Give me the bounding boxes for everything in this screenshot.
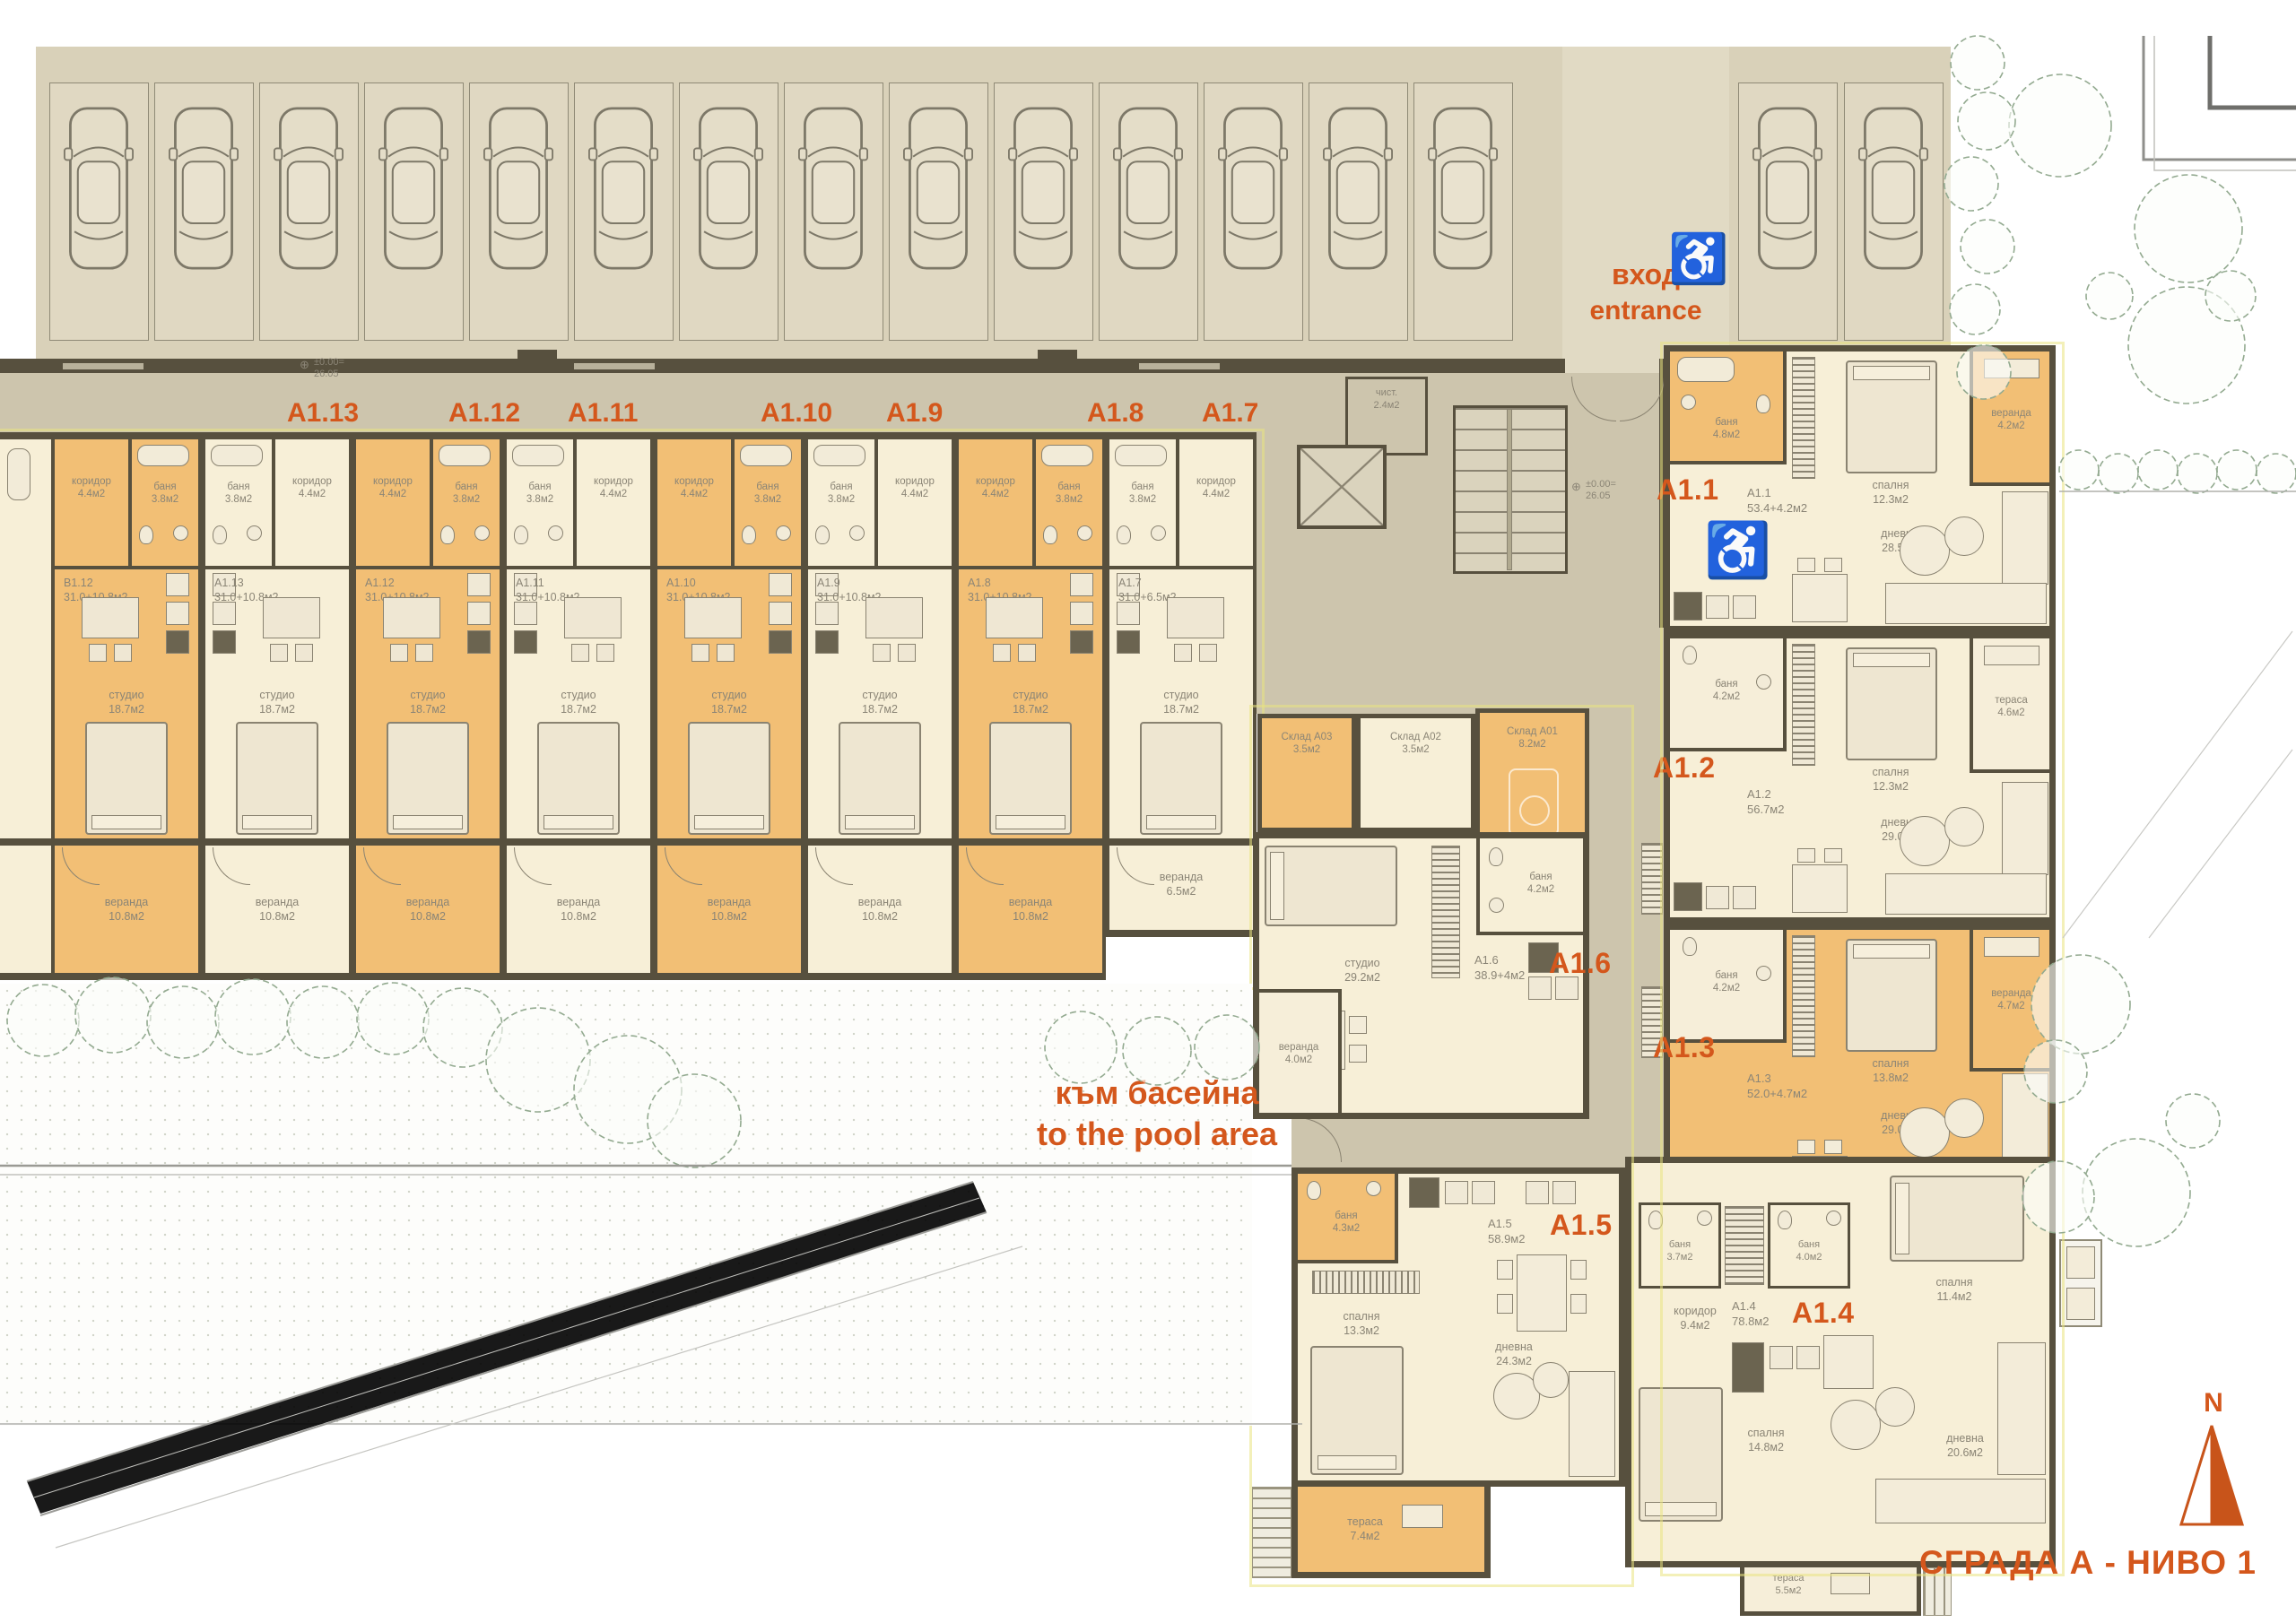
studio-veranda-label: веранда 10.8м2 xyxy=(507,896,650,924)
studio-chair xyxy=(89,644,107,662)
parking-stall xyxy=(259,82,359,341)
parking-stall xyxy=(1844,82,1944,341)
studio-hall-label: коридор 4.4м2 xyxy=(1181,475,1251,501)
studio-bath: баня 3.8м2 xyxy=(205,439,275,569)
studio-bath-label: баня 3.8м2 xyxy=(1113,481,1172,507)
studio-bath-label: баня 3.8м2 xyxy=(812,481,871,507)
page-title: СГРАДА А - НИВО 1 xyxy=(1919,1544,2278,1582)
studio-veranda-wall xyxy=(654,838,804,846)
studio-unit-a1-10: баня 3.8м2 коридор 4.4м2 A1.10 31.0+10.8… xyxy=(654,432,804,980)
studio-table xyxy=(383,597,440,638)
studio-veranda-label: веранда 10.8м2 xyxy=(959,896,1102,924)
studio-veranda: веранда 10.8м2 xyxy=(356,846,500,973)
studio-unit-a1-9: баня 3.8м2 коридор 4.4м2 A1.9 31.0+10.8м… xyxy=(804,432,955,980)
parking-stall xyxy=(784,82,883,341)
studio-table xyxy=(986,597,1043,638)
studio-bed xyxy=(537,722,620,835)
studio-veranda: веранда 10.8м2 xyxy=(808,846,952,973)
studio-veranda-label: веранда 10.8м2 xyxy=(657,896,801,924)
entrance-label-en: entrance xyxy=(1562,296,1729,326)
door-arc xyxy=(213,847,250,885)
studio-bed xyxy=(236,722,318,835)
studio-room-label: студио 18.7м2 xyxy=(1109,689,1253,716)
a14-terrace-label: тераса 5.5м2 xyxy=(1748,1573,1829,1598)
studio-hall-label: коридор 4.4м2 xyxy=(358,475,428,501)
tree-icon xyxy=(2257,454,2296,493)
studio-room-label: студио 18.7м2 xyxy=(55,689,198,716)
studio-veranda: веранда 6.5м2 xyxy=(1109,846,1253,930)
studio-hall-label: коридор 4.4м2 xyxy=(659,475,729,501)
studio-bed xyxy=(989,722,1072,835)
studio-bath: баня 3.8м2 xyxy=(128,439,198,569)
studio-bath-label: баня 3.8м2 xyxy=(510,481,570,507)
elevation-marker: ±0.00= 26.05 xyxy=(314,357,344,380)
studio-hall: коридор 4.4м2 xyxy=(657,439,731,569)
window-strip xyxy=(574,363,655,369)
tree-icon xyxy=(2138,450,2178,490)
north-label: N xyxy=(2196,1388,2231,1419)
studio-unit-a1-12: баня 3.8м2 коридор 4.4м2 A1.12 31.0+10.8… xyxy=(352,432,503,980)
parking-stall xyxy=(1099,82,1198,341)
parking-stall xyxy=(154,82,254,341)
studio-chair xyxy=(270,644,288,662)
studio-veranda-label: веранда 10.8м2 xyxy=(55,896,198,924)
tree-icon xyxy=(1951,36,2005,90)
studio-chair xyxy=(717,644,735,662)
tree-icon xyxy=(2166,1094,2220,1148)
studio-kitchen xyxy=(1065,573,1100,663)
studio-chair xyxy=(415,644,433,662)
studio-hall: коридор 4.4м2 xyxy=(275,439,349,569)
parking-stall xyxy=(679,82,778,341)
studio-room-label: студио 18.7м2 xyxy=(507,689,650,716)
studio-table xyxy=(82,597,139,638)
studio-hall: коридор 4.4м2 xyxy=(1179,439,1253,569)
studio-veranda-label: веранда 10.8м2 xyxy=(808,896,952,924)
studio-chair xyxy=(295,644,313,662)
tree-icon xyxy=(1944,157,1998,211)
studio-veranda-wall xyxy=(202,838,352,846)
studio-bath: баня 3.8м2 xyxy=(430,439,500,569)
parking-stall xyxy=(1738,82,1838,341)
studio-veranda-wall xyxy=(955,838,1106,846)
studio-veranda-label: веранда 10.8м2 xyxy=(356,896,500,924)
floor-plan: вход entrance ♿ чист. 2.4м2 ±0.00= 26.05… xyxy=(0,0,2296,1623)
studio-veranda-wall xyxy=(1106,838,1257,846)
studio-top-label-a1-12: A1.12 xyxy=(448,398,520,429)
studio-veranda: веранда 10.8м2 xyxy=(959,846,1102,973)
tree-icon xyxy=(2135,175,2242,282)
garden-area-southwest xyxy=(0,984,1252,1426)
tree-icon xyxy=(2217,450,2257,490)
studio-top-label-a1-9: A1.9 xyxy=(886,398,943,429)
elevator xyxy=(1297,445,1387,529)
studio-table xyxy=(865,597,923,638)
tree-icon xyxy=(2099,454,2138,493)
studio-veranda: веранда 10.8м2 xyxy=(657,846,801,973)
studio-unit-a1-11: баня 3.8м2 коридор 4.4м2 A1.11 31.0+10.8… xyxy=(503,432,654,980)
door-arc xyxy=(514,847,552,885)
studio-table xyxy=(564,597,622,638)
pool-label-en: to the pool area xyxy=(987,1115,1327,1153)
studio-top-label-a1-7: A1.7 xyxy=(1202,398,1258,429)
studio-chair xyxy=(1018,644,1036,662)
garden-area-northeast xyxy=(2059,36,2296,619)
studio-bath: баня 3.8м2 xyxy=(507,439,577,569)
studio-hall-label: коридор 4.4м2 xyxy=(277,475,347,501)
tree-icon xyxy=(2205,271,2256,321)
studio-top-label-a1-11: A1.11 xyxy=(568,398,638,429)
studio-bath: баня 3.8м2 xyxy=(1109,439,1179,569)
studio-unit-a1-7: баня 3.8м2 коридор 4.4м2 A1.7 31.0+6.5м2… xyxy=(1106,432,1257,937)
tree-icon xyxy=(1961,220,2014,273)
studio-bath-label: баня 3.8м2 xyxy=(1039,481,1099,507)
door-arc xyxy=(665,847,702,885)
studio-kitchen xyxy=(763,573,799,663)
studio-kitchen xyxy=(161,573,196,663)
parking-stall xyxy=(364,82,464,341)
north-arrow-icon xyxy=(2181,1426,2242,1524)
studio-table xyxy=(1167,597,1224,638)
studio-table xyxy=(684,597,742,638)
building-outline xyxy=(1660,342,2065,1576)
tree-icon xyxy=(2083,1139,2190,1246)
tree-icon xyxy=(2009,74,2111,177)
studio-hall-label: коридор 4.4м2 xyxy=(961,475,1031,501)
studio-bath-label: баня 3.8м2 xyxy=(437,481,496,507)
studio-top-label-a1-8: A1.8 xyxy=(1087,398,1144,429)
studio-chair xyxy=(873,644,891,662)
paving-joint xyxy=(2063,631,2292,938)
studio-bath-label: баня 3.8м2 xyxy=(738,481,797,507)
studio-hall-label: коридор 4.4м2 xyxy=(578,475,648,501)
a14-balcony-bench xyxy=(2059,1239,2102,1327)
studio-hall: коридор 4.4м2 xyxy=(356,439,430,569)
paving-joint xyxy=(2149,750,2292,938)
window-strip xyxy=(63,363,143,369)
studio-table xyxy=(263,597,320,638)
elevation-marker: ±0.00= 26.05 xyxy=(1586,479,1616,502)
studio-veranda: веранда 10.8м2 xyxy=(205,846,349,973)
studio-room-label: студио 18.7м2 xyxy=(657,689,801,716)
pool-label-bg: към басейна xyxy=(987,1074,1327,1112)
clean-room-label: чист. 2.4м2 xyxy=(1349,387,1424,412)
parking-stall xyxy=(1204,82,1303,341)
studio-bath-label: баня 3.8м2 xyxy=(135,481,195,507)
studio-bed xyxy=(688,722,770,835)
studio-veranda: веранда 10.8м2 xyxy=(55,846,198,973)
studio-hall: коридор 4.4м2 xyxy=(959,439,1032,569)
parking-stall xyxy=(889,82,988,341)
studio-room-label: студио 18.7м2 xyxy=(205,689,349,716)
tree-icon xyxy=(2178,454,2217,493)
door-arc xyxy=(966,847,1004,885)
boundary-corner xyxy=(2144,36,2296,160)
accessible-parking-icon: ♿ xyxy=(1668,231,1728,288)
studio-chair xyxy=(993,644,1011,662)
boundary-corner xyxy=(2210,36,2296,108)
tree-icon xyxy=(2128,287,2245,404)
parking-stall xyxy=(994,82,1093,341)
studio-bath: баня 3.8м2 xyxy=(731,439,801,569)
stair-rail xyxy=(1507,409,1512,570)
tree-icon xyxy=(2086,273,2133,319)
studio-bed xyxy=(387,722,469,835)
studio-room-label: студио 18.7м2 xyxy=(808,689,952,716)
studio-unit-a1-8: баня 3.8м2 коридор 4.4м2 A1.8 31.0+10.8м… xyxy=(955,432,1106,980)
door-arc xyxy=(62,847,100,885)
studio-hall: коридор 4.4м2 xyxy=(878,439,952,569)
studio-bed xyxy=(1140,722,1222,835)
studio-veranda-wall xyxy=(51,838,202,846)
studio-chair xyxy=(571,644,589,662)
studio-hall: коридор 4.4м2 xyxy=(577,439,650,569)
studio-bath-label: баня 3.8м2 xyxy=(209,481,268,507)
studio-veranda-label: веранда 6.5м2 xyxy=(1109,871,1253,898)
studio-chair xyxy=(898,644,916,662)
window-strip xyxy=(1139,363,1220,369)
tree-icon xyxy=(1958,92,2015,150)
studio-chair xyxy=(1199,644,1217,662)
boundary-corner xyxy=(2154,36,2296,170)
studio-veranda-label: веранда 10.8м2 xyxy=(205,896,349,924)
door-arc xyxy=(815,847,853,885)
studio-unit-a1-13: баня 3.8м2 коридор 4.4м2 A1.13 31.0+10.8… xyxy=(202,432,352,980)
studio-chair xyxy=(596,644,614,662)
parking-stall xyxy=(1309,82,1408,341)
door-arc xyxy=(363,847,401,885)
studio-unit-b1-12: баня 3.8м2 коридор 4.4м2 B1.12 31.0+10.8… xyxy=(51,432,202,980)
studio-bath: баня 3.8м2 xyxy=(1032,439,1102,569)
studio-veranda-wall xyxy=(804,838,955,846)
parking-stall xyxy=(49,82,149,341)
studio-chair xyxy=(1174,644,1192,662)
studio-top-label-a1-13: A1.13 xyxy=(287,398,359,429)
studio-veranda-wall xyxy=(503,838,654,846)
studio-bed xyxy=(85,722,168,835)
studio-veranda: веранда 10.8м2 xyxy=(507,846,650,973)
studio-chair xyxy=(114,644,132,662)
studio-sliver-unit xyxy=(0,432,51,980)
studio-hall: коридор 4.4м2 xyxy=(55,439,128,569)
studio-bed xyxy=(839,722,921,835)
studio-hall-label: коридор 4.4м2 xyxy=(57,475,126,501)
studio-top-label-a1-10: A1.10 xyxy=(761,398,832,429)
parking-stall xyxy=(574,82,674,341)
studio-chair xyxy=(390,644,408,662)
studio-chair xyxy=(691,644,709,662)
parking-stall xyxy=(469,82,569,341)
tree-icon xyxy=(2059,450,2099,490)
studio-kitchen xyxy=(462,573,498,663)
studio-room-label: студио 18.7м2 xyxy=(959,689,1102,716)
tree-icon xyxy=(1950,284,2000,334)
parking-stall xyxy=(1413,82,1513,341)
studio-room-label: студио 18.7м2 xyxy=(356,689,500,716)
studio-veranda-wall xyxy=(352,838,503,846)
studio-hall-label: коридор 4.4м2 xyxy=(880,475,950,501)
north-wall xyxy=(0,359,1565,374)
studio-bath: баня 3.8м2 xyxy=(808,439,878,569)
